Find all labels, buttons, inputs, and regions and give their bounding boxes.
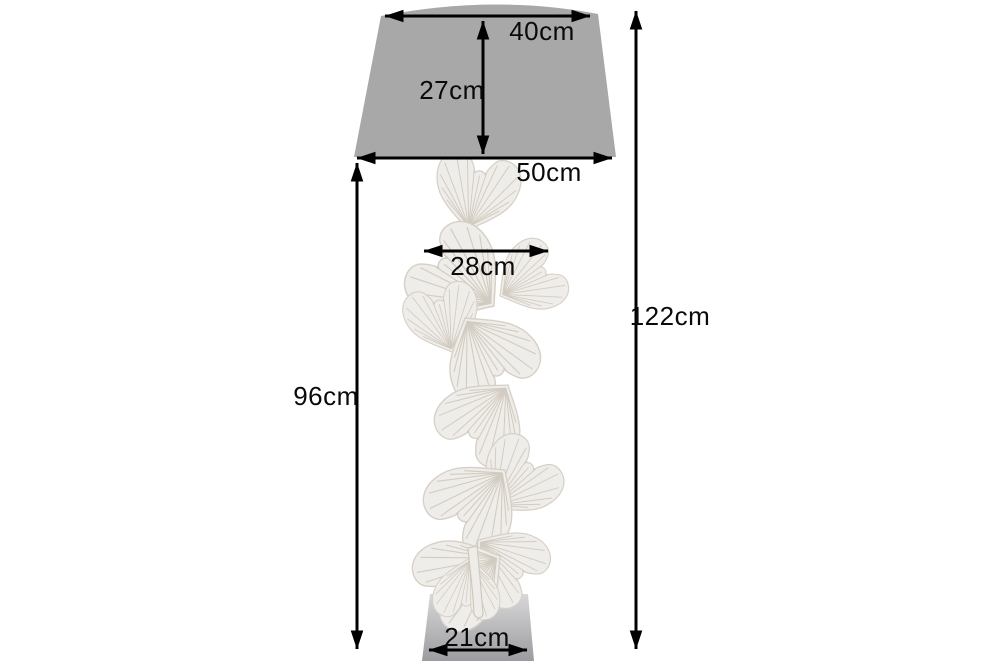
diagram-artwork xyxy=(0,0,1000,667)
shade-top-width-label: 40cm xyxy=(509,18,575,44)
lamp-dimension-diagram: 40cm 27cm 50cm 28cm 96cm 122cm 21cm xyxy=(0,0,1000,667)
total-height-label: 122cm xyxy=(630,303,711,329)
shade-bottom-width-label: 50cm xyxy=(516,159,582,185)
ginkgo-leaf-stand xyxy=(395,147,575,640)
lampshade xyxy=(354,4,616,157)
ginkgo-leaf xyxy=(427,147,525,238)
shade-height-label: 27cm xyxy=(419,77,485,103)
stand-height-label: 96cm xyxy=(293,383,359,409)
base-width-label: 21cm xyxy=(444,624,510,650)
leaf-width-label: 28cm xyxy=(450,253,516,279)
